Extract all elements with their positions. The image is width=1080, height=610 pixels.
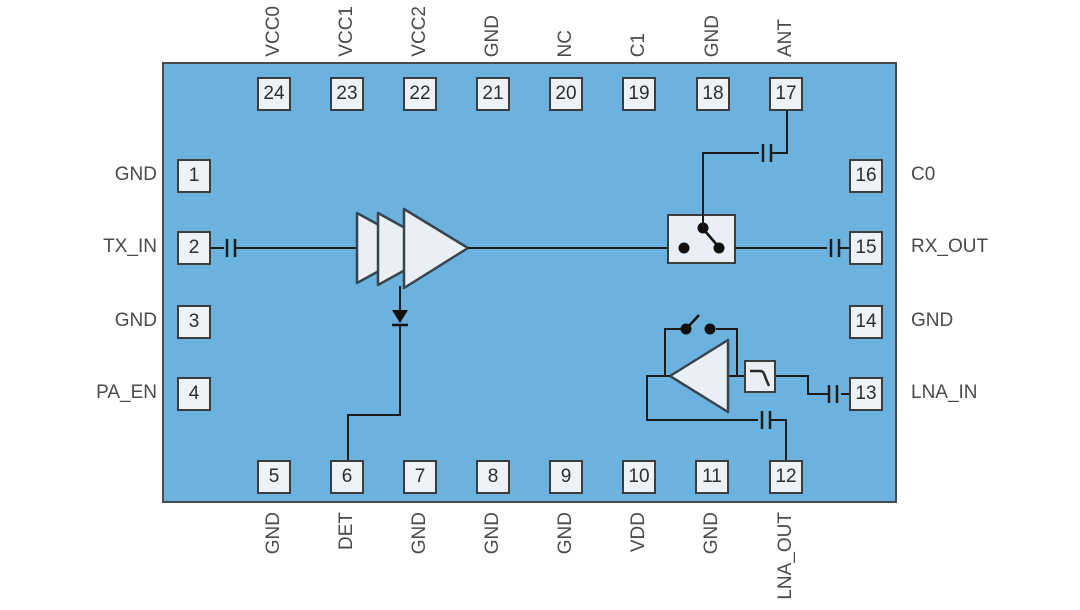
- pin-label-bottom-1: DET: [336, 512, 358, 550]
- pin-label-top-1: VCC1: [336, 0, 358, 57]
- pin-box-bottom-6: 11: [695, 460, 729, 494]
- pin-box-top-4: 20: [549, 77, 583, 111]
- low-pass-filter-icon: [745, 361, 775, 392]
- rx-capacitor-icon: [831, 239, 839, 257]
- pin-label-right-0: C0: [911, 164, 935, 186]
- pin-label-text: GND: [702, 15, 724, 57]
- pin-box-bottom-3: 8: [476, 460, 510, 494]
- pin-box-bottom-7: 12: [769, 460, 803, 494]
- pin-label-left-1: TX_IN: [103, 236, 157, 258]
- pin-label-right-1: RX_OUT: [911, 236, 988, 258]
- pin-label-text: GND: [555, 512, 577, 554]
- pin-label-text: VCC0: [263, 6, 285, 57]
- pin-box-top-1: 23: [330, 77, 364, 111]
- pin-label-left-2: GND: [115, 310, 157, 332]
- pin-label-bottom-5: VDD: [628, 512, 650, 552]
- internal-schematic: [0, 0, 1080, 610]
- antenna-capacitor-icon: [763, 144, 771, 162]
- antenna-wire: [703, 111, 787, 228]
- tx-dc-block-capacitor-icon: [227, 239, 235, 257]
- pin-label-left-3: PA_EN: [96, 382, 157, 404]
- pin-label-top-4: NC: [555, 0, 577, 57]
- pin-label-left-0: GND: [115, 164, 157, 186]
- detector-wire: [348, 286, 400, 460]
- pin-label-top-7: ANT: [775, 0, 797, 57]
- pin-label-text: GND: [701, 512, 723, 554]
- pin-box-bottom-0: 5: [257, 460, 291, 494]
- pin-label-bottom-2: GND: [409, 512, 431, 554]
- lna-input-capacitor-icon: [829, 385, 837, 403]
- pin-box-bottom-1: 6: [330, 460, 364, 494]
- pin-label-text: VCC1: [336, 6, 358, 57]
- pin-label-top-3: GND: [482, 0, 504, 57]
- pin-box-top-5: 19: [622, 77, 656, 111]
- antenna-switch-icon: [668, 215, 735, 263]
- pin-label-text: VDD: [628, 512, 650, 552]
- pin-label-text: LNA_OUT: [775, 512, 797, 600]
- pin-label-bottom-6: GND: [701, 512, 723, 554]
- pin-box-right-1: 15: [849, 231, 883, 265]
- pin-label-bottom-4: GND: [555, 512, 577, 554]
- pin-label-text: NC: [555, 30, 577, 57]
- pin-box-bottom-2: 7: [403, 460, 437, 494]
- pin-label-text: ANT: [775, 19, 797, 57]
- pin-label-text: C1: [628, 33, 650, 57]
- pin-label-text: GND: [263, 512, 285, 554]
- lna-output-capacitor-icon: [762, 411, 770, 429]
- pin-box-left-3: 4: [177, 377, 211, 411]
- pin-box-bottom-4: 9: [549, 460, 583, 494]
- pin-label-bottom-3: GND: [482, 512, 504, 554]
- fem-pin-diagram: 24VCC023VCC122VCC221GND20NC19C118GND17AN…: [0, 0, 1080, 610]
- pin-box-left-2: 3: [177, 305, 211, 339]
- pin-box-top-3: 21: [476, 77, 510, 111]
- pin-label-text: GND: [409, 512, 431, 554]
- detector-diode-icon: [392, 310, 408, 325]
- pin-label-right-3: LNA_IN: [911, 382, 978, 404]
- pin-label-right-2: GND: [911, 310, 953, 332]
- pin-box-bottom-5: 10: [622, 460, 656, 494]
- pin-label-top-0: VCC0: [263, 0, 285, 57]
- pin-box-right-2: 14: [849, 305, 883, 339]
- pin-box-left-1: 2: [177, 231, 211, 265]
- pa-amplifier-icon: [357, 209, 468, 288]
- pin-box-top-2: 22: [403, 77, 437, 111]
- pin-label-text: GND: [482, 512, 504, 554]
- pin-box-right-3: 13: [849, 377, 883, 411]
- pin-label-bottom-7: LNA_OUT: [775, 512, 797, 600]
- pin-label-top-6: GND: [702, 0, 724, 57]
- pin-box-top-0: 24: [257, 77, 291, 111]
- pin-label-text: GND: [482, 15, 504, 57]
- pin-label-top-2: VCC2: [409, 0, 431, 57]
- pin-box-top-6: 18: [696, 77, 730, 111]
- pin-label-bottom-0: GND: [263, 512, 285, 554]
- lna-amplifier-icon: [670, 340, 728, 412]
- pin-box-left-0: 1: [177, 159, 211, 193]
- pin-box-top-7: 17: [769, 77, 803, 111]
- pin-label-text: VCC2: [409, 6, 431, 57]
- pin-box-right-0: 16: [849, 159, 883, 193]
- pin-label-text: DET: [336, 512, 358, 550]
- pin-label-top-5: C1: [628, 0, 650, 57]
